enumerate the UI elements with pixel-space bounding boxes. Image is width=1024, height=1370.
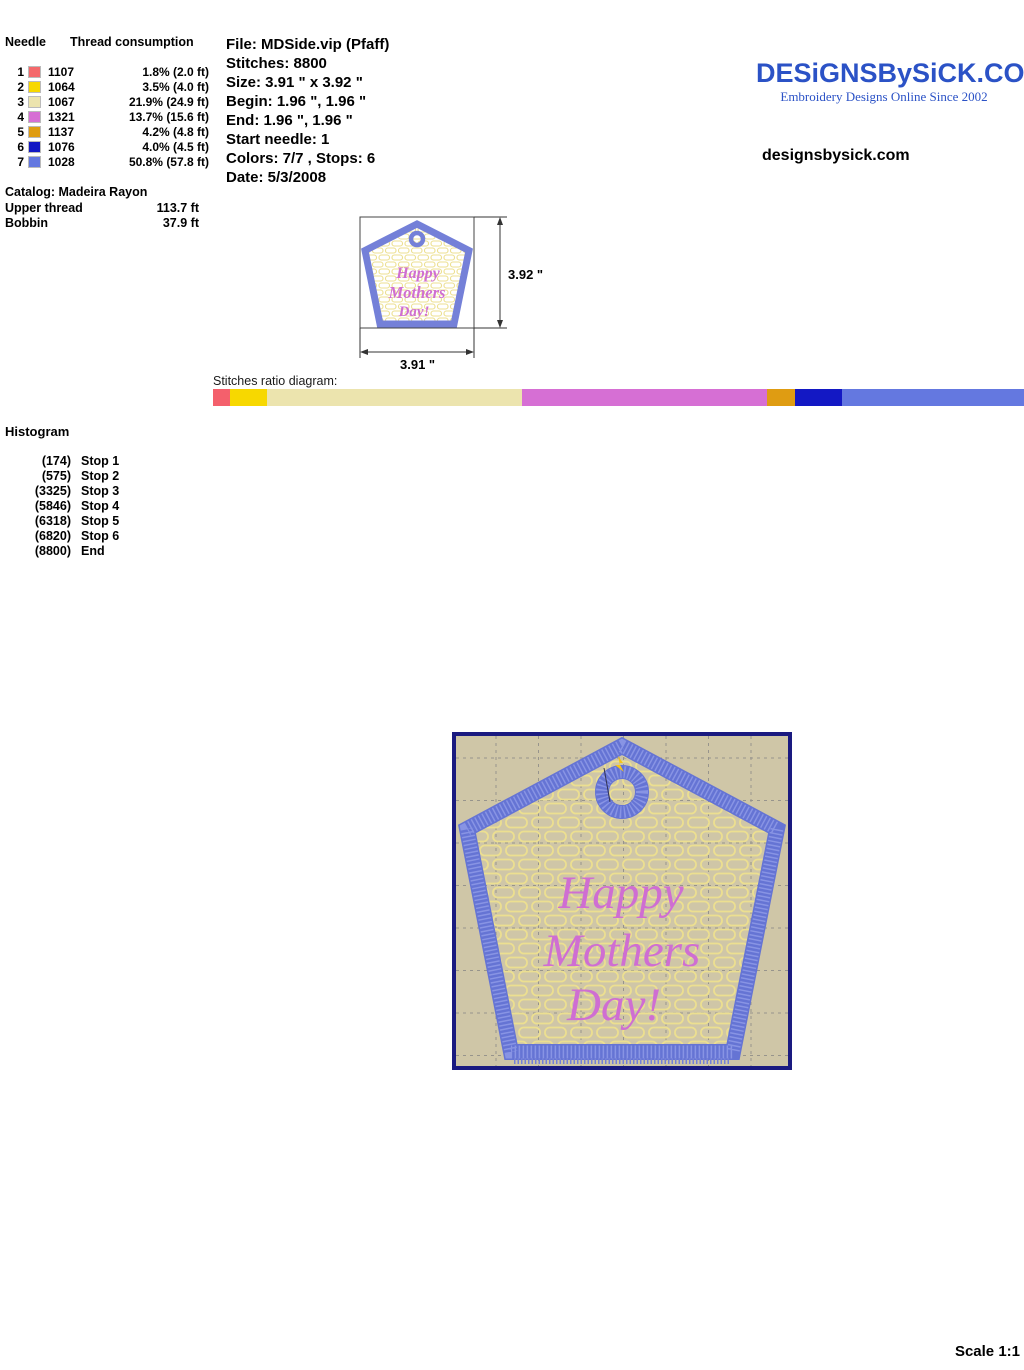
needle-number: 6: [4, 140, 24, 154]
table-row: 3 1067 21.9% (24.9 ft): [4, 94, 209, 109]
stitches-line: Stitches: 8800: [226, 54, 389, 73]
pentagon-design-small: Happy Mothers Day!: [365, 224, 469, 324]
needle-number: 3: [4, 95, 24, 109]
catalog-line: Catalog: Madeira Rayon: [5, 185, 199, 201]
table-row: 1 1107 1.8% (2.0 ft): [4, 64, 209, 79]
stitches-ratio-bar: [213, 389, 1024, 406]
ratio-segment: [267, 389, 522, 406]
thread-code: 1137: [48, 125, 96, 139]
designsbysick-logo: DESiGNSBySiCK.COM Embroidery Designs Onl…: [756, 58, 1012, 105]
scale-label: Scale 1:1: [955, 1343, 1020, 1360]
bobbin-row: Bobbin 37.9 ft: [5, 216, 199, 232]
thread-color-swatch: [28, 81, 41, 93]
thread-color-swatch: [28, 111, 41, 123]
stitch-count: (6318): [5, 514, 71, 529]
table-row: 6 1076 4.0% (4.5 ft): [4, 139, 209, 154]
thread-code: 1028: [48, 155, 96, 169]
design-text-line: Day!: [566, 979, 661, 1031]
ratio-segment: [230, 389, 267, 406]
stop-label: Stop 5: [81, 514, 119, 528]
ratio-segment: [213, 389, 230, 406]
needle-number: 7: [4, 155, 24, 169]
histogram-row: (174)Stop 1: [5, 454, 119, 469]
print-preview-page: NeedleThread consumption 1 1107 1.8% (2.…: [0, 0, 1024, 1370]
ratio-diagram-label: Stitches ratio diagram:: [213, 374, 337, 388]
file-name-line: File: MDSide.vip (Pfaff): [226, 35, 389, 54]
thread-consumption: 3.5% (4.0 ft): [96, 80, 209, 94]
logo-wordmark: DESiGNSBySiCK.COM: [756, 58, 1012, 88]
stitch-count: (3325): [5, 484, 71, 499]
table-row: 2 1064 3.5% (4.0 ft): [4, 79, 209, 94]
colors-stops-line: Colors: 7/7 , Stops: 6: [226, 149, 389, 168]
height-dimension-label: 3.92 ": [508, 267, 543, 282]
width-dimension-label: 3.91 ": [400, 357, 435, 372]
thread-consumption: 4.0% (4.5 ft): [96, 140, 209, 154]
ratio-segment: [842, 389, 1024, 406]
ratio-segment: [522, 389, 767, 406]
thread-code: 1064: [48, 80, 96, 94]
histogram-list: (174)Stop 1 (575)Stop 2 (3325)Stop 3 (58…: [5, 454, 119, 559]
histogram-title: Histogram: [5, 424, 69, 439]
stitch-count: (575): [5, 469, 71, 484]
stitch-count: (174): [5, 454, 71, 469]
size-line: Size: 3.91 " x 3.92 ": [226, 73, 389, 92]
stitch-count: (6820): [5, 529, 71, 544]
thread-color-swatch: [28, 96, 41, 108]
thread-consumption: 50.8% (57.8 ft): [96, 155, 209, 169]
ratio-segment: [767, 389, 795, 406]
stop-label: End: [81, 544, 105, 558]
date-line: Date: 5/3/2008: [226, 168, 389, 187]
design-preview-large: Happy Mothers Day!: [452, 732, 792, 1070]
thread-color-swatch: [28, 141, 41, 153]
design-text-line: Mothers: [543, 925, 701, 977]
stop-label: Stop 6: [81, 529, 119, 543]
needle-table-header: NeedleThread consumption: [5, 35, 194, 49]
end-line: End: 1.96 ", 1.96 ": [226, 111, 389, 130]
needle-number: 2: [4, 80, 24, 94]
design-text-line: Happy: [395, 265, 440, 282]
histogram-row: (8800)End: [5, 544, 119, 559]
thread-color-swatch: [28, 126, 41, 138]
thread-consumption: 1.8% (2.0 ft): [96, 65, 209, 79]
histogram-row: (3325)Stop 3: [5, 484, 119, 499]
design-preview-small: Happy Mothers Day! 3.92 " 3.91 ": [352, 212, 557, 382]
stop-label: Stop 1: [81, 454, 119, 468]
ratio-segment: [795, 389, 842, 406]
upper-thread-label: Upper thread: [5, 201, 157, 217]
website-url-text: designsbysick.com: [762, 147, 910, 165]
design-text-line: Mothers: [388, 283, 446, 302]
histogram-row: (6820)Stop 6: [5, 529, 119, 544]
upper-thread-row: Upper thread 113.7 ft: [5, 201, 199, 217]
begin-line: Begin: 1.96 ", 1.96 ": [226, 92, 389, 111]
needle-number: 1: [4, 65, 24, 79]
thread-color-swatch: [28, 156, 41, 168]
design-text-line: Happy: [557, 867, 683, 919]
needle-table: 1 1107 1.8% (2.0 ft) 2 1064 3.5% (4.0 ft…: [4, 64, 209, 169]
bobbin-label: Bobbin: [5, 216, 163, 232]
file-info-block: File: MDSide.vip (Pfaff) Stitches: 8800 …: [226, 35, 389, 187]
upper-thread-value: 113.7 ft: [157, 201, 199, 217]
thread-consumption: 4.2% (4.8 ft): [96, 125, 209, 139]
needle-number: 4: [4, 110, 24, 124]
thread-code: 1321: [48, 110, 96, 124]
bobbin-value: 37.9 ft: [163, 216, 199, 232]
table-row: 7 1028 50.8% (57.8 ft): [4, 154, 209, 169]
histogram-row: (575)Stop 2: [5, 469, 119, 484]
start-needle-line: Start needle: 1: [226, 130, 389, 149]
thread-color-swatch: [28, 66, 41, 78]
stop-label: Stop 2: [81, 469, 119, 483]
table-row: 4 1321 13.7% (15.6 ft): [4, 109, 209, 124]
stitch-count: (5846): [5, 499, 71, 514]
logo-tagline: Embroidery Designs Online Since 2002: [756, 89, 1012, 105]
table-row: 5 1137 4.2% (4.8 ft): [4, 124, 209, 139]
design-text-line: Day!: [398, 304, 430, 320]
thread-consumption: 13.7% (15.6 ft): [96, 110, 209, 124]
thread-code: 1067: [48, 95, 96, 109]
histogram-row: (6318)Stop 5: [5, 514, 119, 529]
thread-code: 1107: [48, 65, 96, 79]
stop-label: Stop 3: [81, 484, 119, 498]
thread-consumption: 21.9% (24.9 ft): [96, 95, 209, 109]
thread-consumption-column-header: Thread consumption: [70, 35, 194, 49]
stitch-count: (8800): [5, 544, 71, 559]
catalog-block: Catalog: Madeira Rayon Upper thread 113.…: [5, 185, 199, 232]
histogram-row: (5846)Stop 4: [5, 499, 119, 514]
thread-code: 1076: [48, 140, 96, 154]
needle-column-header: Needle: [5, 35, 46, 49]
stop-label: Stop 4: [81, 499, 119, 513]
needle-number: 5: [4, 125, 24, 139]
